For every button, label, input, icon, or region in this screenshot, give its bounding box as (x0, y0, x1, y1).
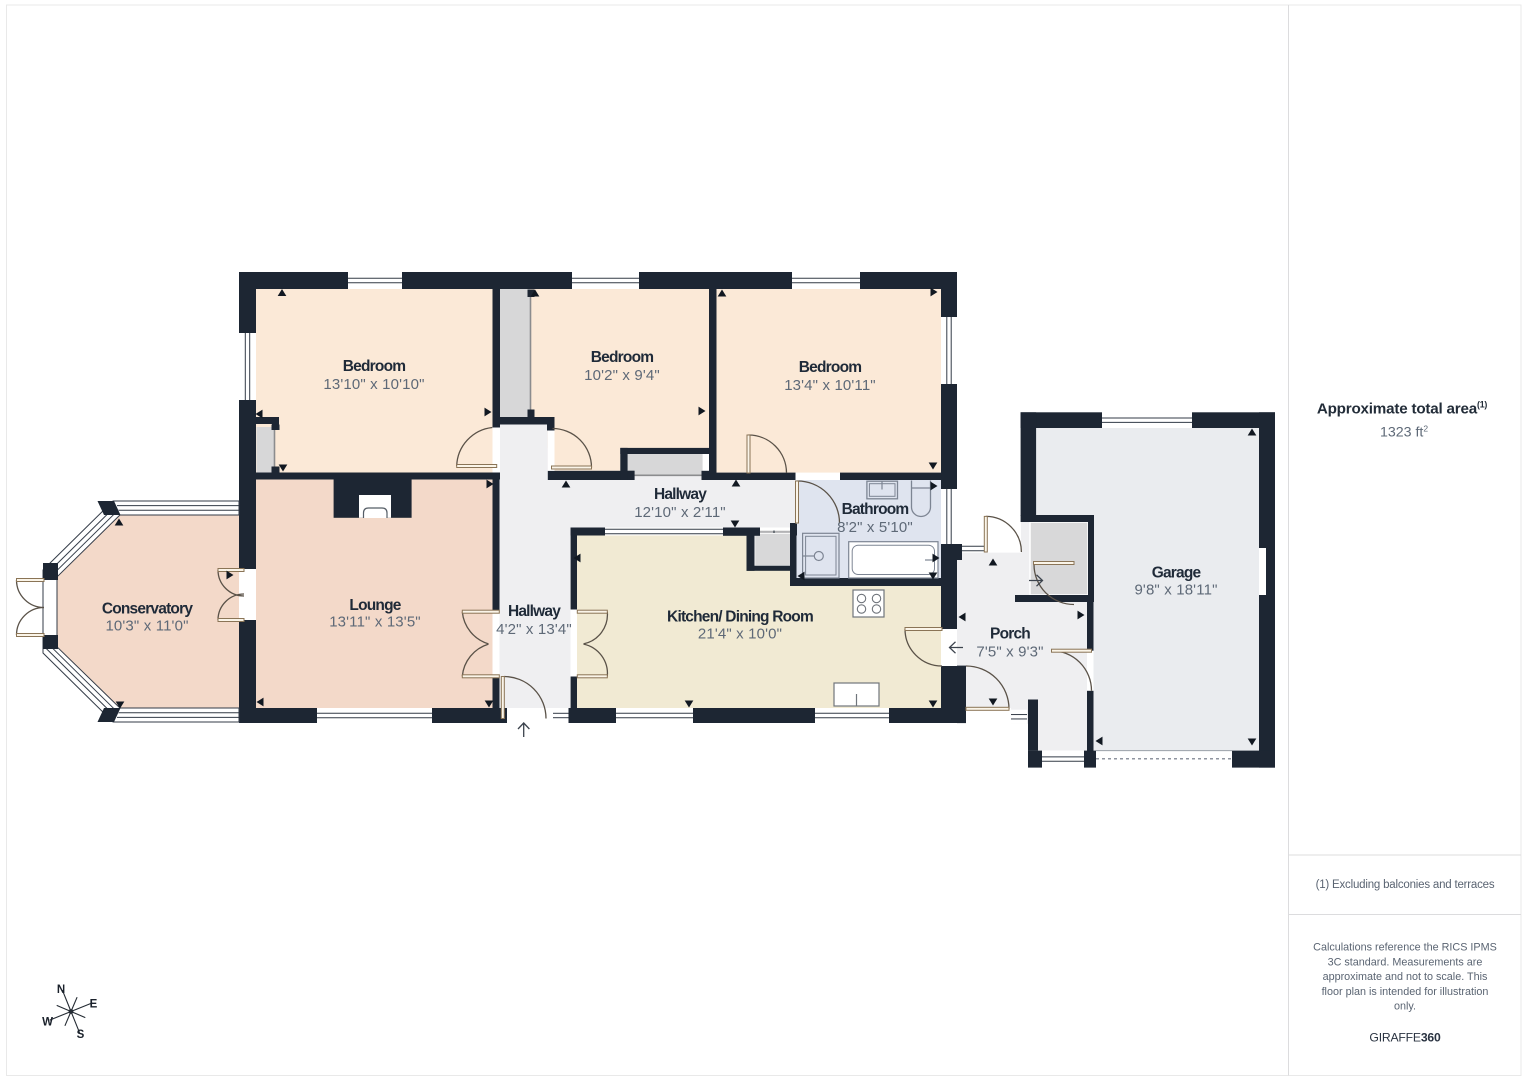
svg-text:1323 ft2: 1323 ft2 (1380, 424, 1428, 441)
svg-text:8'2" x 5'10": 8'2" x 5'10" (837, 519, 913, 536)
svg-text:Porch: Porch (990, 626, 1030, 643)
svg-text:(1) Excluding balconies and te: (1) Excluding balconies and terraces (1316, 879, 1495, 891)
svg-text:Bedroom: Bedroom (343, 358, 405, 375)
svg-text:13'11" x 13'5": 13'11" x 13'5" (329, 614, 421, 631)
svg-text:Conservatory: Conservatory (102, 601, 194, 618)
svg-text:Hallway: Hallway (508, 603, 561, 620)
svg-text:4'2" x 13'4": 4'2" x 13'4" (496, 621, 572, 638)
svg-text:12'10" x 2'11": 12'10" x 2'11" (634, 504, 726, 521)
svg-text:Calculations reference the RIC: Calculations reference the RICS IPMS (1313, 942, 1497, 954)
svg-text:13'10" x 10'10": 13'10" x 10'10" (323, 376, 424, 393)
svg-text:13'4" x 10'11": 13'4" x 10'11" (784, 377, 876, 394)
svg-text:N: N (57, 984, 65, 996)
svg-text:10'3" x 11'0": 10'3" x 11'0" (105, 618, 188, 635)
svg-text:Bedroom: Bedroom (799, 359, 861, 376)
svg-text:21'4" x 10'0": 21'4" x 10'0" (698, 626, 782, 643)
svg-text:GIRAFFE360: GIRAFFE360 (1369, 1031, 1441, 1045)
svg-text:10'2" x 9'4": 10'2" x 9'4" (584, 367, 660, 384)
svg-text:7'5" x 9'3": 7'5" x 9'3" (976, 644, 1043, 661)
svg-text:Kitchen/ Dining Room: Kitchen/ Dining Room (667, 609, 813, 626)
svg-text:floor plan is intended for ill: floor plan is intended for illustration (1322, 986, 1489, 998)
svg-text:W: W (42, 1017, 53, 1029)
svg-text:Bedroom: Bedroom (591, 349, 653, 366)
svg-text:3C standard. Measurements are: 3C standard. Measurements are (1328, 956, 1483, 968)
svg-text:Hallway: Hallway (654, 486, 707, 503)
svg-text:Lounge: Lounge (349, 597, 401, 614)
svg-text:Bathroom: Bathroom (842, 501, 909, 518)
svg-text:only.: only. (1394, 1001, 1416, 1013)
svg-text:Approximate total area(1): Approximate total area(1) (1317, 400, 1488, 418)
svg-text:E: E (90, 999, 98, 1011)
svg-text:S: S (77, 1029, 85, 1041)
svg-text:Garage: Garage (1152, 565, 1202, 582)
svg-text:9'8" x 18'11": 9'8" x 18'11" (1134, 582, 1217, 599)
svg-text:approximate and not to scale.: approximate and not to scale. This (1323, 971, 1488, 983)
